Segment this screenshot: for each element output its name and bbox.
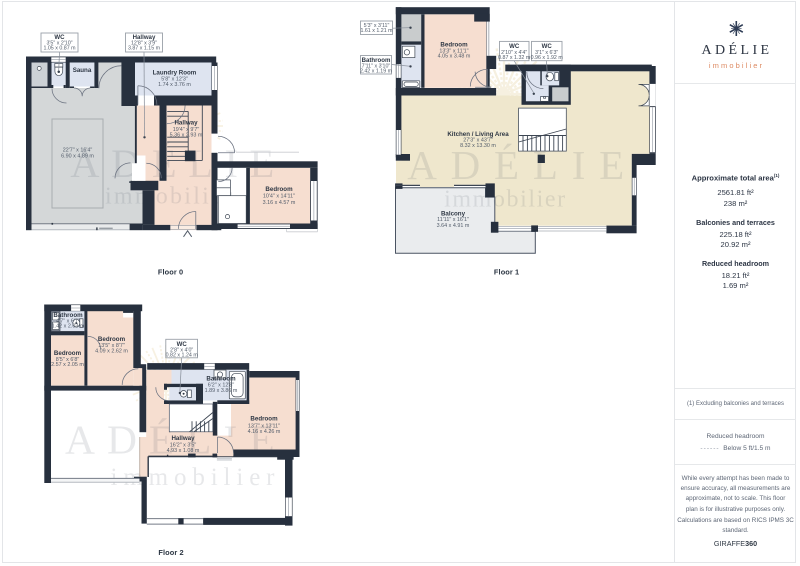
svg-text:Laundry Room: Laundry Room: [153, 69, 197, 76]
svg-text:0.96 x 1.92 m: 0.96 x 1.92 m: [531, 55, 564, 61]
svg-text:1.74 x 3.76 m: 1.74 x 3.76 m: [158, 82, 191, 88]
svg-text:Bedroom: Bedroom: [250, 416, 278, 423]
svg-text:0.82 x 1.24 m: 0.82 x 1.24 m: [166, 352, 199, 358]
svg-text:3.64 x 4.91 m: 3.64 x 4.91 m: [437, 223, 470, 229]
svg-text:Bedroom: Bedroom: [98, 336, 126, 343]
svg-text:Hallway: Hallway: [174, 119, 198, 126]
svg-text:Hallway: Hallway: [171, 435, 195, 442]
svg-text:0.87 x 1.32 m: 0.87 x 1.32 m: [498, 55, 531, 61]
svg-text:Bedroom: Bedroom: [440, 41, 468, 48]
svg-text:1.42 x 2.03 m: 1.42 x 2.03 m: [52, 324, 85, 330]
svg-text:1.05 x 0.87 m: 1.05 x 0.87 m: [43, 45, 76, 51]
svg-text:Floor 1: Floor 1: [494, 268, 519, 277]
svg-text:Sauna: Sauna: [73, 67, 92, 74]
svg-text:Bathroom: Bathroom: [206, 375, 236, 382]
svg-text:1.89 x 3.86 m: 1.89 x 3.86 m: [205, 388, 238, 394]
svg-text:10'4" x 14'11": 10'4" x 14'11": [263, 194, 295, 200]
svg-text:3.16 x 4.57 m: 3.16 x 4.57 m: [263, 200, 296, 206]
svg-text:4.16 x 4.26 m: 4.16 x 4.26 m: [248, 429, 281, 435]
svg-text:4.09 x 2.62 m: 4.09 x 2.62 m: [95, 349, 128, 355]
svg-text:2.57 x 2.05 m: 2.57 x 2.05 m: [51, 362, 84, 368]
svg-text:Bedroom: Bedroom: [54, 350, 82, 357]
svg-text:2.42 x 1.19 m: 2.42 x 1.19 m: [360, 69, 393, 75]
svg-text:1.61 x 1.21 m: 1.61 x 1.21 m: [360, 28, 393, 34]
svg-text:Floor 2: Floor 2: [158, 548, 183, 557]
svg-text:Bedroom: Bedroom: [265, 186, 293, 193]
svg-text:6.90 x 4.89 m: 6.90 x 4.89 m: [61, 154, 94, 160]
svg-text:3.87 x 1.15 m: 3.87 x 1.15 m: [128, 45, 161, 51]
svg-text:4.05 x 3.48 m: 4.05 x 3.48 m: [438, 54, 471, 60]
svg-text:22'7" x 16'4": 22'7" x 16'4": [63, 147, 93, 153]
svg-text:8.32 x 13.30 m: 8.32 x 13.30 m: [460, 143, 496, 149]
svg-text:Floor 0: Floor 0: [158, 268, 183, 277]
svg-text:4.93 x 1.08 m: 4.93 x 1.08 m: [167, 448, 200, 454]
svg-text:immobilier: immobilier: [444, 187, 565, 213]
svg-text:5.36 x 2.93 m: 5.36 x 2.93 m: [170, 133, 203, 139]
